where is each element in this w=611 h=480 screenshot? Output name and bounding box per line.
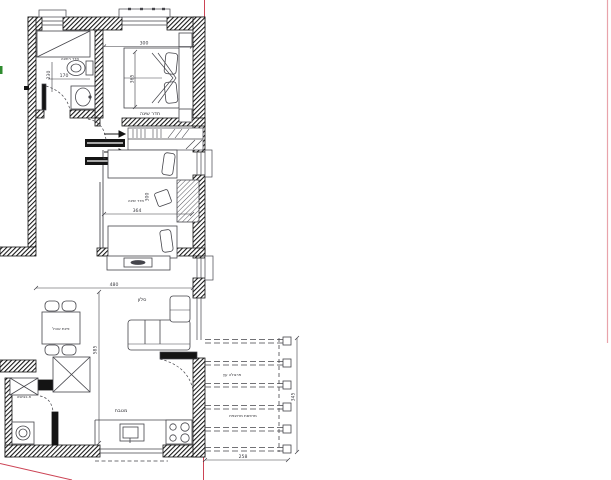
nightstand xyxy=(179,109,192,122)
wall-bed1-bottom-b xyxy=(122,118,205,126)
living-furniture xyxy=(10,256,190,444)
wall-right-c xyxy=(193,278,205,298)
sofa-chaise xyxy=(170,296,190,322)
room-label-bedroom2: חדר שינה xyxy=(128,198,145,203)
wall-tick xyxy=(24,86,29,90)
wall-bed1-bottom-a xyxy=(95,118,100,126)
window-sill-bedroom2 xyxy=(205,150,212,177)
wall-bath-right xyxy=(95,30,103,118)
kitchen-fixtures xyxy=(95,420,193,445)
section-lines xyxy=(0,0,608,480)
wall-left xyxy=(28,17,36,247)
dining-chair xyxy=(45,345,59,355)
sofa-main xyxy=(128,320,190,350)
dim-bath-height: 230 xyxy=(46,71,52,80)
area-label-porch: מרפסת מרוצפת xyxy=(229,413,257,418)
wall-right-d xyxy=(193,358,205,457)
room-label-laundry: ח.כביסה xyxy=(17,394,32,399)
wall-midleft xyxy=(0,360,36,372)
dining-chair xyxy=(45,301,59,311)
pergola-structure xyxy=(205,337,291,453)
floor-plan-canvas: חדר רחצה חדר שינה חדר שינה סלון פינת אוכ… xyxy=(0,0,611,480)
stove-burner xyxy=(181,434,189,442)
sink-icon xyxy=(76,88,91,106)
window-sill-living-top xyxy=(205,256,213,280)
wall-top-b xyxy=(63,17,122,30)
wall-bath-bottom-a xyxy=(36,110,44,118)
room-label-living: סלון xyxy=(138,297,147,303)
area-label-pergola: פרגולה עץ xyxy=(223,372,242,377)
toilet-icon xyxy=(67,61,85,76)
room-label-bathroom: חדר רחצה xyxy=(61,56,80,61)
wall-bath-bottom-b xyxy=(70,110,95,118)
room-label-bedroom1: חדר שינה xyxy=(140,111,160,117)
dim-bedroom2-height: 300 xyxy=(145,193,151,202)
dim-bedroom2-width: 364 xyxy=(133,208,142,214)
dim-porch-width: 258 xyxy=(239,454,248,460)
nightstand xyxy=(179,33,192,47)
dim-bath-width: 170 xyxy=(60,73,69,79)
stove-burner xyxy=(181,423,189,431)
door-leaf-entrance xyxy=(160,352,197,359)
wall-bottom-a xyxy=(5,445,100,457)
wall-laundry-divider xyxy=(52,412,58,445)
toilet-tank xyxy=(86,61,93,75)
bedroom2-furniture xyxy=(108,150,199,258)
wardrobe xyxy=(177,180,199,222)
misc-marks xyxy=(0,66,29,90)
dim-porch-height: 345 xyxy=(291,393,297,402)
dim-living-width: 480 xyxy=(110,282,119,288)
window-sill-bath xyxy=(39,10,66,17)
desk-chair xyxy=(154,189,172,207)
dim-bedroom1-width: 300 xyxy=(140,41,149,47)
wall-step-left xyxy=(0,247,36,256)
room-label-dining: פינת אוכל xyxy=(52,326,70,331)
floor-plan-page: חדר רחצה חדר שינה חדר שינה סלון פינת אוכ… xyxy=(0,0,611,480)
room-label-kitchen: מטבח xyxy=(115,408,128,414)
door-leaf-bathroom xyxy=(42,84,46,110)
dim-bedroom1-height: 365 xyxy=(130,75,136,84)
pergola-posts xyxy=(283,337,291,453)
green-marker xyxy=(0,66,3,74)
dining-chair xyxy=(62,345,76,355)
closet xyxy=(128,128,203,150)
stove-burner xyxy=(170,435,176,441)
stove-burner xyxy=(170,424,176,430)
dining-chair xyxy=(62,301,76,311)
dim-living-height: 585 xyxy=(93,346,99,355)
